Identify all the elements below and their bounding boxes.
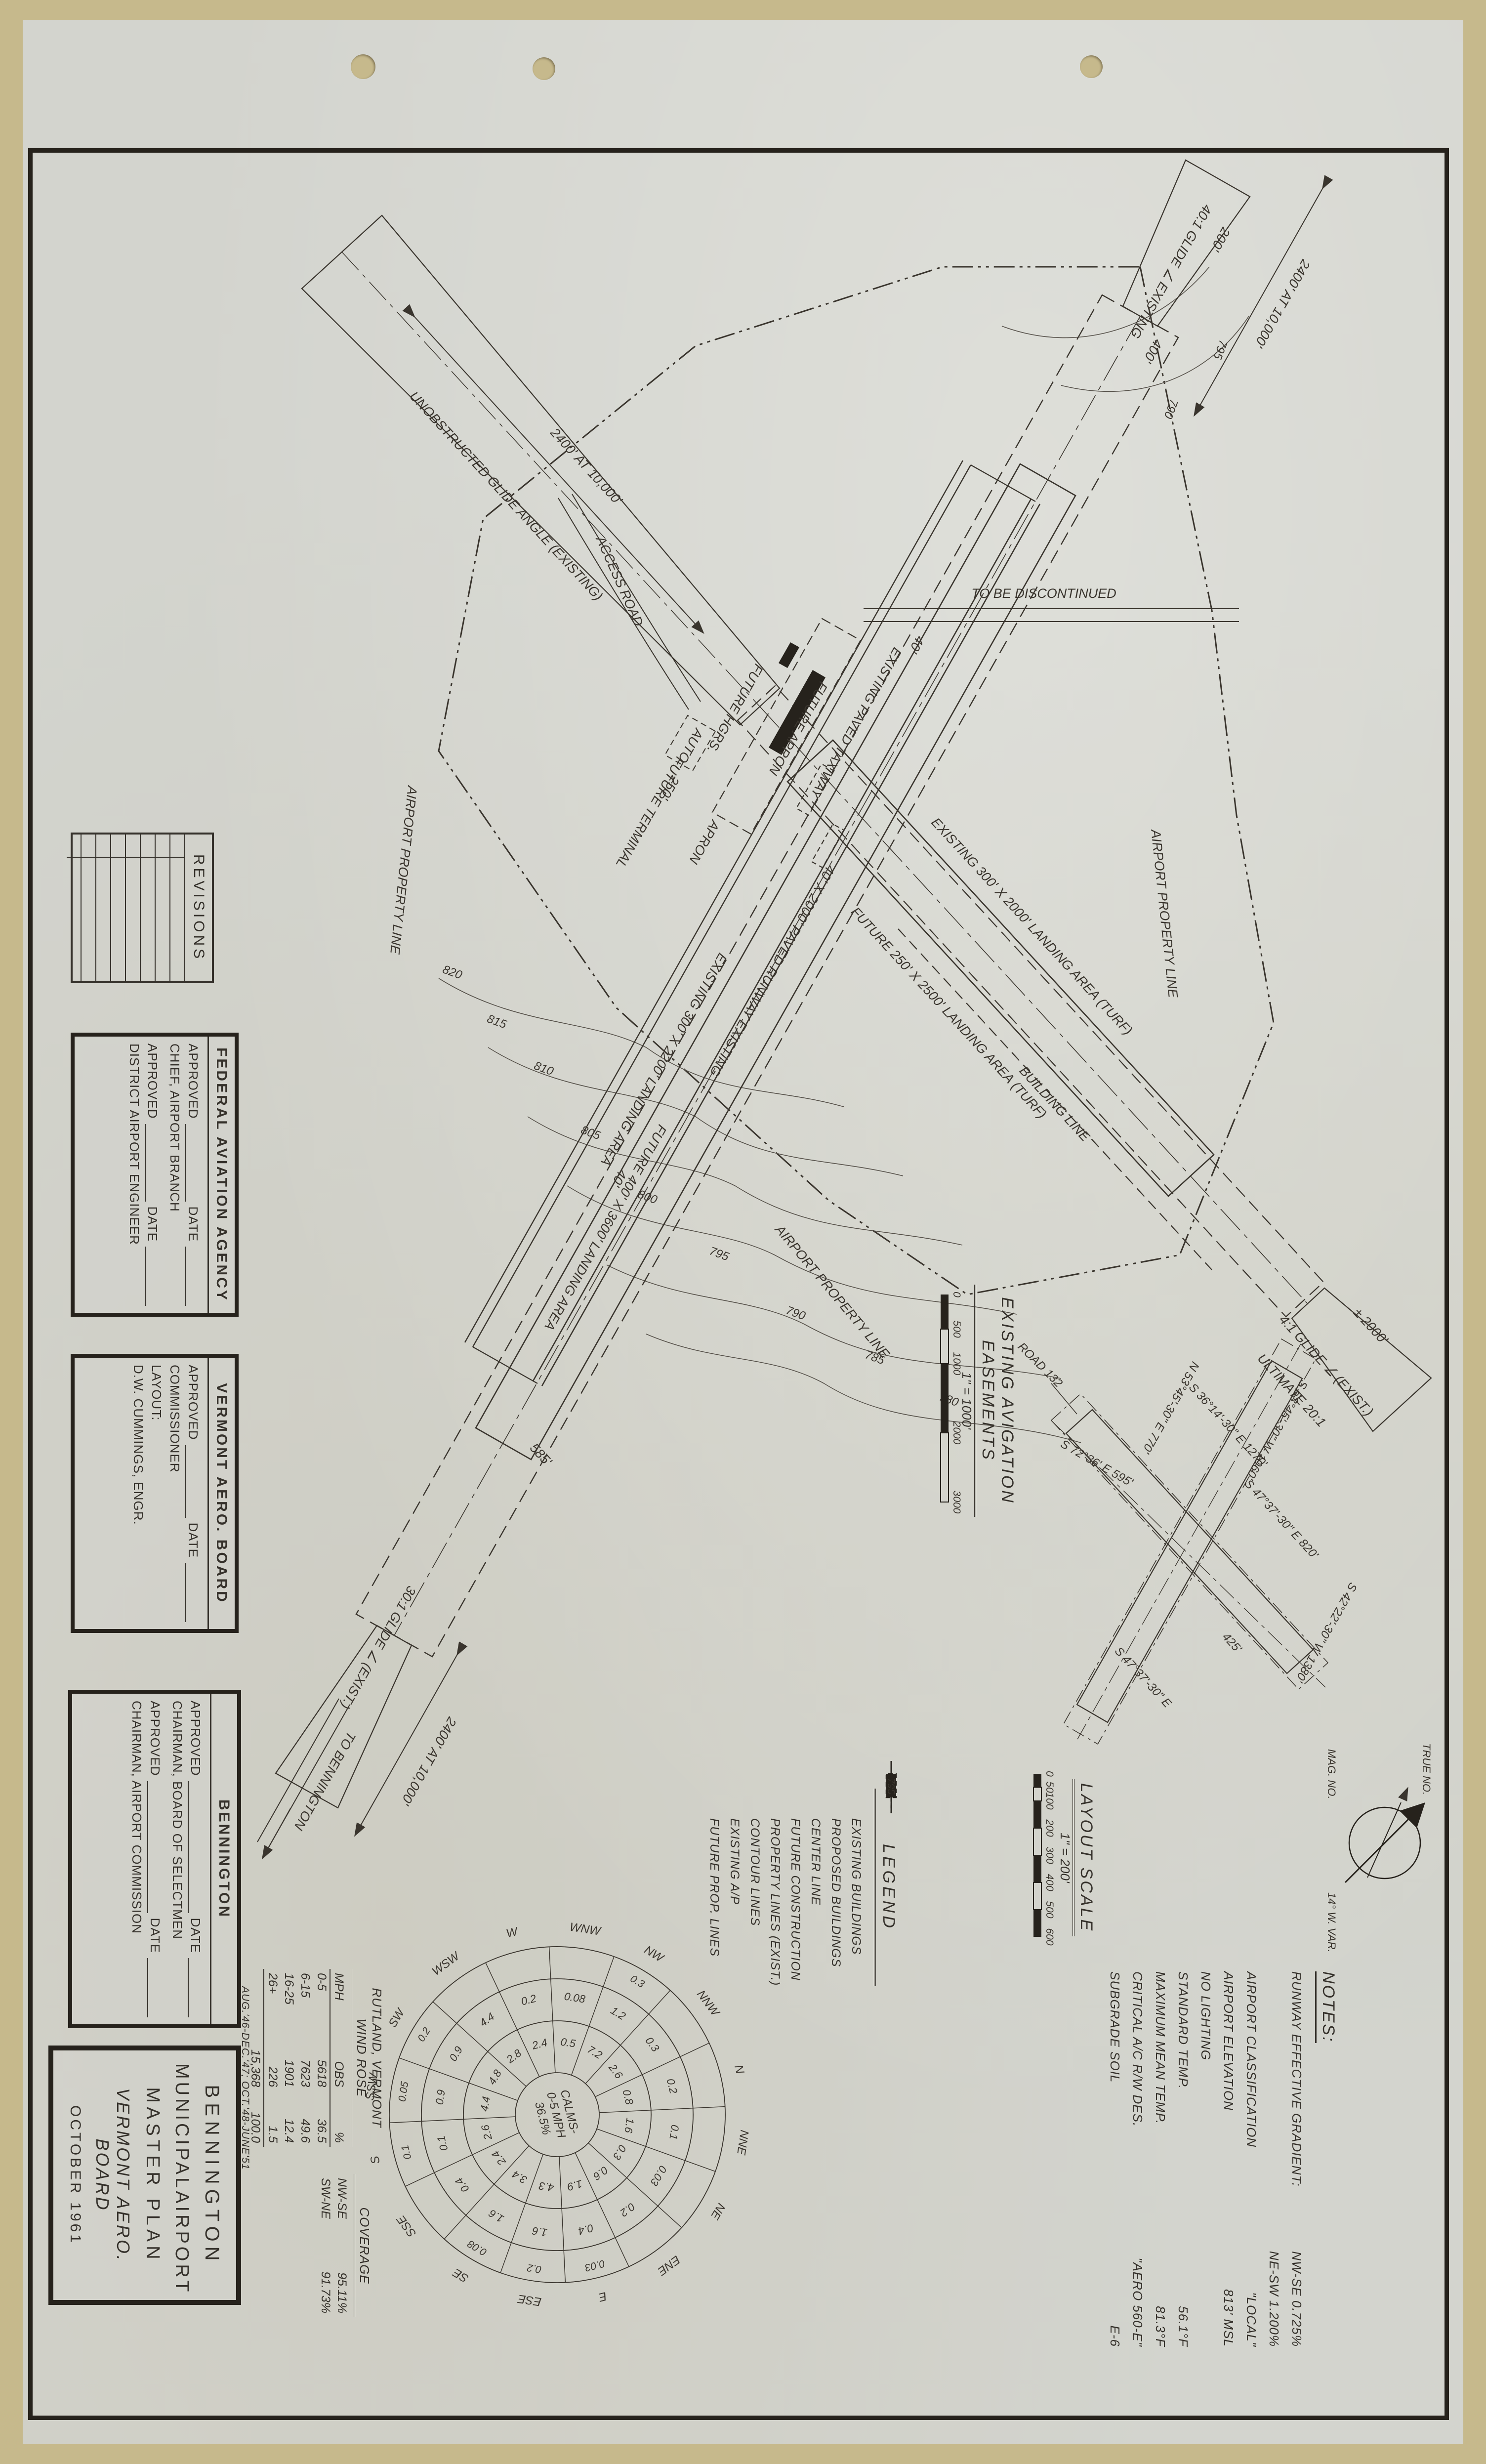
svg-text:0.03: 0.03 [648,2164,669,2188]
svg-text:TO BENNINGTON: TO BENNINGTON [291,1729,359,1833]
svg-text:NE: NE [708,2201,728,2222]
wind-table-row: 26+2261.5 [264,1969,281,2147]
svg-text:SSE: SSE [394,2213,419,2240]
svg-text:S 42°22'-30" W 1380': S 42°22'-30" W 1380' [1292,1580,1360,1685]
revisions-title: REVISIONS [184,835,212,981]
svg-text:805: 805 [579,1123,602,1142]
taxiway-edge [465,460,963,1342]
legend-block: LEGEND EXISTING BUILDINGS PROPOSED BUILD… [704,1759,898,2016]
note-label: SUBGRADE SOIL [1104,1971,1126,2083]
revision-row [95,835,110,981]
sw-approach-centerline [342,252,760,707]
svg-text:4.4: 4.4 [478,2095,493,2112]
legend-item: PROPERTY LINES (EXIST.) [765,1759,785,2016]
note-value: NW-SE 0.725% [1285,2251,1308,2347]
svg-text:NNE: NNE [734,2129,751,2156]
legend-item: FUTURE PROP. LINES [704,1759,724,2016]
svg-text:200: 200 [1044,1819,1055,1837]
airport-property-line [439,267,1274,1295]
revision-row [81,835,95,981]
plan-labels: EXISTING PAVED TAXIWAY 40' X 2000' PAVED… [291,202,1391,1833]
revision-row [67,835,81,981]
coverage-table: COVERAGE NW-SE95.11% SW-NE91.73% [317,2174,372,2317]
faa-role1: CHIEF, AIRPORT BRANCH [167,1037,185,1313]
svg-text:2.6: 2.6 [606,2061,625,2082]
svg-text:0.4: 0.4 [453,2175,471,2195]
revision-row [140,835,155,981]
note-label: NO LIGHTING [1195,1971,1217,2060]
date-line [185,1563,197,1622]
svg-text:TO BE DISCONTINUED: TO BE DISCONTINUED [971,586,1116,601]
nw-approach-dim [1195,188,1323,415]
note-label: MAXIMUM MEAN TEMP. [1149,1971,1172,2124]
svg-text:0.9: 0.9 [433,2089,448,2106]
svg-text:N: N [732,2064,747,2076]
svg-text:± 2000': ± 2000' [1351,1305,1391,1347]
svg-text:1.2: 1.2 [609,2004,628,2022]
faa-approval-block: FEDERAL AVIATION AGENCY APPROVEDDATE CHI… [71,1033,239,1317]
svg-text:0.3: 0.3 [628,1973,647,1990]
svg-text:1.6: 1.6 [622,2117,636,2134]
svg-text:400': 400' [1140,336,1165,366]
layout-scale-title: LAYOUT SCALE [1073,1779,1096,1936]
svg-text:NW: NW [642,1943,666,1965]
svg-text:425': 425' [1219,1630,1244,1656]
sw-approach-corridor [302,215,780,725]
svg-text:FUTURE APRON: FUTURE APRON [766,679,830,778]
signature-line [185,1124,197,1202]
layout-scale-bar: 0 50 100 200 300 400 500 600 [1033,1771,1055,1946]
date-line [188,1958,200,2017]
legend-item: EXISTING BUILDINGS [846,1759,866,2016]
note-value: E-6 [1104,2326,1126,2347]
svg-text:0.9: 0.9 [447,2044,465,2063]
note-label: RUNWAY EFFECTIVE GRADIENT: [1285,1971,1308,2187]
svg-text:ENE: ENE [655,2253,683,2279]
svg-text:S 47°37'-30" E 820': S 47°37'-30" E 820' [1241,1477,1321,1562]
note-value: NE-SW 1.200% [1263,2251,1285,2347]
coverage-row: SW-NE91.73% [317,2174,333,2317]
note-label: AIRPORT ELEVATION [1217,1971,1240,2111]
svg-text:2.4: 2.4 [489,2148,508,2168]
note-label: STANDARD TEMP. [1172,1971,1195,2089]
svg-text:7.2: 7.2 [585,2043,604,2061]
signature-line [185,1445,197,1518]
svg-text:S: S [368,2155,383,2166]
svg-text:4.3: 4.3 [537,2179,555,2194]
svg-text:0.08: 0.08 [465,2238,489,2258]
notes-title: NOTES: [1315,1971,1338,2043]
coverage-title: COVERAGE [354,2174,372,2317]
svg-text:SW: SW [386,2005,408,2030]
svg-text:AIRPORT PROPERTY LINE: AIRPORT PROPERTY LINE [772,1221,893,1362]
scanned-drawing-photo: { "title_block": { "line1": "BENNINGTON"… [0,0,1486,2464]
svg-text:FUTURE TERMINAL: FUTURE TERMINAL [613,754,687,871]
date-label: DATE [185,1523,201,1558]
svg-text:4.8: 4.8 [486,2067,504,2087]
svg-text:2400' AT 10,000': 2400' AT 10,000' [398,1714,459,1808]
date-label: DATE [185,1207,201,1242]
svg-text:2400' AT 10,000': 2400' AT 10,000' [547,425,625,508]
svg-text:0.2: 0.2 [664,2077,680,2095]
svg-text:3.4: 3.4 [510,2168,529,2186]
revision-row [169,835,184,981]
revision-row [155,835,169,981]
signature-line [147,1781,159,1913]
svg-text:800: 800 [636,1187,659,1207]
svg-text:0.5: 0.5 [560,2036,577,2050]
svg-text:1.9: 1.9 [566,2177,584,2193]
date-line [145,1247,157,1306]
svg-text:UNOBSTRUCTED GLIDE ANGLE (EXIS: UNOBSTRUCTED GLIDE ANGLE (EXISTING) [407,389,606,604]
approved-label: APPROVED [185,1044,201,1119]
note-value: "LOCAL" [1240,2292,1263,2347]
svg-text:40' X 2000' PAVED RUNWAY EXIST: 40' X 2000' PAVED RUNWAY EXISTING [707,862,838,1079]
revision-row [125,835,140,981]
approved-label: APPROVED [185,1365,201,1440]
svg-text:1.6: 1.6 [531,2224,548,2239]
svg-text:600: 600 [1044,1928,1055,1945]
layout-scale-caption: LAYOUT SCALE 1" = 200' [1057,1774,1096,1942]
svg-text:EXISTING 300' X 2000' LANDING: EXISTING 300' X 2000' LANDING AREA (TURF… [928,815,1135,1038]
svg-text:0.8: 0.8 [620,2088,636,2106]
vermont-title: VERMONT AERO. BOARD [207,1358,235,1629]
faa-title: FEDERAL AVIATION AGENCY [207,1037,235,1313]
svg-text:14° W. VAR.: 14° W. VAR. [1325,1892,1338,1953]
svg-text:300: 300 [1044,1846,1055,1864]
bennington-arrow [263,1808,290,1858]
svg-text:MAG. NO.: MAG. NO. [1325,1749,1338,1799]
layout-scale-ratio: 1" = 200' [1058,1833,1073,1883]
svg-text:795: 795 [707,1244,731,1263]
note-label: CRITICAL A/C R/W DES. [1126,1971,1149,2127]
svg-text:30:1 GLIDE ∠ (EXIST.): 30:1 GLIDE ∠ (EXIST.) [338,1584,419,1712]
svg-text:WSW: WSW [430,1949,463,1978]
title-master-plan: MASTER PLAN [142,2063,163,2287]
svg-text:ROAD 132: ROAD 132 [1015,1340,1065,1390]
svg-text:0.6: 0.6 [590,2164,610,2183]
svg-text:0.2: 0.2 [526,2262,542,2275]
inset-caption: EXISTING AVIGATION EASEMENTS 1" = 1000' [959,1285,1017,1517]
svg-text:100: 100 [1044,1792,1055,1809]
date-line [147,1958,159,2017]
svg-text:0.3: 0.3 [610,2142,629,2162]
svg-text:0.08: 0.08 [563,1990,586,2005]
vermont-engineer: D.W. CUMMINGS, ENGR. [130,1358,149,1629]
svg-text:SE: SE [450,2265,471,2285]
svg-text:810: 810 [532,1059,555,1078]
svg-text:AUTO: AUTO [675,725,706,765]
date-label: DATE [188,1918,203,1953]
title-airport: AIRPORT [171,2191,192,2295]
svg-text:S 47°37'-30" E: S 47°37'-30" E [1112,1644,1174,1711]
signature-line [145,1124,157,1202]
taxiway-edge [473,465,971,1347]
coverage-row: NW-SE95.11% [333,2174,350,2317]
revisions-block: REVISIONS [71,833,214,983]
svg-text:500: 500 [1044,1901,1055,1918]
svg-text:2.6: 2.6 [479,2123,495,2141]
svg-text:0.4: 0.4 [577,2222,595,2238]
drawing-landscape-canvas: EXISTING PAVED TAXIWAY 40' X 2000' PAVED… [0,0,1486,2464]
wind-table-row: 16-25190112.4 [281,1969,297,2147]
svg-text:S 72°36' E 595': S 72°36' E 595' [1058,1437,1136,1490]
svg-text:585': 585' [527,1440,555,1469]
svg-text:0.2: 0.2 [520,1992,537,2008]
faa-role2: DISTRICT AIRPORT ENGINEER [126,1037,145,1313]
wind-table-title: RUTLAND, VERMONT WIND ROSE [351,1969,384,2147]
vermont-approval-block: VERMONT AERO. BOARD APPROVEDDATE COMMISS… [71,1354,239,1633]
date-label: DATE [147,1918,163,1953]
sw-approach-dim [414,316,703,632]
legend-item: EXISTING A/P [724,1759,744,2016]
note-label: AIRPORT CLASSIFICATION [1240,1971,1263,2147]
note-value: 813' MSL [1217,2289,1240,2347]
svg-text:0.1: 0.1 [435,2134,451,2152]
taxiway-stub [473,1347,537,1383]
legend-title: LEGEND [874,1789,898,1986]
wind-table-row: 6-15762349.6 [297,1969,313,2147]
note-value: "AERO 560-E" [1126,2257,1149,2347]
legend-item: FUTURE CONSTRUCTION [785,1759,805,2016]
bennington-role2: CHAIRMAN, AIRPORT COMMISSION [129,1694,147,2024]
svg-text:2.4: 2.4 [530,2036,548,2052]
turf-centerline [760,707,1308,1304]
svg-text:1.6: 1.6 [486,2207,506,2225]
svg-text:0.1: 0.1 [399,2144,413,2161]
svg-text:0: 0 [1044,1771,1055,1777]
wind-rose-table: RUTLAND, VERMONT WIND ROSE MPH OBS % 0-5… [247,1969,384,2147]
note-value: 56.1°F [1172,2306,1195,2347]
svg-text:790: 790 [784,1303,807,1323]
title-municipal: MUNICIPAL [171,2063,192,2191]
svg-text:2400' AT 10,000': 2400' AT 10,000' [1251,256,1313,350]
svg-text:0.1: 0.1 [667,2124,681,2140]
title-block: BENNINGTON MUNICIPALAIRPORT MASTER PLAN … [48,2046,241,2305]
approved-label: APPROVED [188,1701,203,1776]
inset-title: EXISTING AVIGATION EASEMENTS [974,1285,1017,1517]
svg-text:815: 815 [485,1012,508,1031]
date-line [185,1247,197,1306]
svg-text:0.2: 0.2 [618,2200,637,2219]
bennington-title: BENNINGTON [210,1694,237,2024]
existing-turf-outline [787,740,1214,1196]
svg-text:W: W [505,1924,520,1940]
svg-text:2.8: 2.8 [504,2046,524,2066]
svg-text:0.05: 0.05 [397,2081,411,2102]
vermont-role1: COMMISSIONER [167,1358,185,1629]
legend-item: 795 CONTOUR LINES [744,1759,765,2016]
approved-label: APPROVED [147,1701,163,1776]
title-vermont-aero-board: VERMONT AERO. BOARD [92,2063,133,2287]
date-label: DATE [145,1207,160,1242]
se-approach [276,1626,412,1808]
bennington-approval-block: BENNINGTON APPROVEDDATE CHAIRMAN, BOARD … [68,1690,241,2028]
svg-text:WNW: WNW [569,1921,602,1938]
svg-text:0.3: 0.3 [643,2035,662,2054]
svg-text:S 36°14'-30" E 1270': S 36°14'-30" E 1270' [1186,1381,1270,1471]
svg-text:400: 400 [1044,1874,1055,1891]
legend-item: PROPOSED BUILDINGS [826,1759,846,2016]
note-value: 81.3°F [1149,2306,1172,2347]
title-date: OCTOBER 1961 [67,2063,83,2287]
svg-text:FUTURE 250' X 2500' LANDING AR: FUTURE 250' X 2500' LANDING AREA (TURF) [848,904,1050,1121]
taxiway-stub [971,465,1035,501]
svg-text:APRON: APRON [686,817,723,867]
title-line-1: BENNINGTON [201,2063,223,2287]
revision-row [110,835,125,981]
vermont-layout-label: LAYOUT: [149,1358,167,1629]
svg-text:N 53°45'-30" E 770': N 53°45'-30" E 770' [1139,1359,1202,1456]
svg-text:820: 820 [441,962,464,982]
wind-table-header: MPH OBS % [330,1969,347,2147]
svg-text:TRUE NO.: TRUE NO. [1420,1743,1433,1795]
north-arrow: TRUE NO. MAG. NO. 14° W. VAR. [1325,1743,1433,1953]
wind-table-row: 0-5561836.5 [313,1969,330,2147]
bennington-role1: CHAIRMAN, BOARD OF SELECTMEN [169,1694,188,2024]
svg-text:0.2: 0.2 [415,2025,433,2044]
wind-rose-outer-values: 0.03 0.2 0.08 0.1 0.05 0.2 0.3 [372,1970,711,2310]
svg-text:4.4: 4.4 [477,2010,496,2029]
svg-text:50: 50 [1044,1781,1055,1793]
svg-text:AIRPORT PROPERTY LINE: AIRPORT PROPERTY LINE [387,784,420,955]
approved-label: APPROVED [145,1044,160,1119]
svg-text:ESE: ESE [516,2292,542,2308]
signature-line [188,1781,200,1913]
svg-text:ACCESS ROAD: ACCESS ROAD [593,533,646,629]
svg-text:E: E [597,2289,608,2304]
notes-block: NOTES: RUNWAY EFFECTIVE GRADIENT:NW-SE 0… [1104,1971,1338,2347]
inset-ratio: 1" = 1000' [959,1372,974,1429]
wind-rose-center-text: CALMS- 0-5 MPH 36.5% [531,2088,582,2143]
svg-text:AIRPORT PROPERTY LINE: AIRPORT PROPERTY LINE [1148,828,1181,999]
legend-item: CENTER LINE [805,1759,826,2016]
svg-text:790: 790 [1161,397,1180,420]
svg-text:0.03: 0.03 [583,2257,606,2273]
